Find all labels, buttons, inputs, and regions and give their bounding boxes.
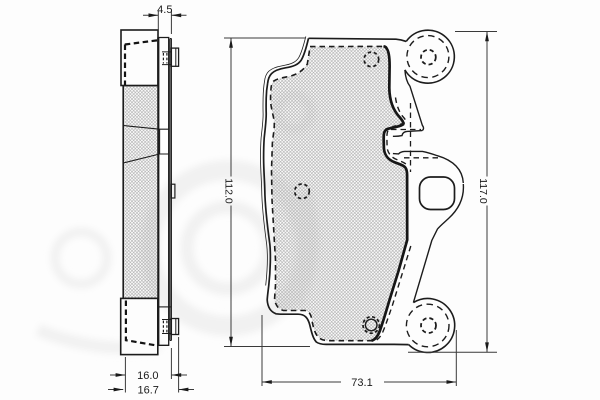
- svg-text:16.0: 16.0: [137, 370, 158, 382]
- svg-text:73.1: 73.1: [351, 377, 372, 389]
- svg-text:4.5: 4.5: [157, 4, 172, 16]
- svg-text:117.0: 117.0: [477, 178, 489, 204]
- svg-text:112.0: 112.0: [223, 178, 235, 204]
- svg-text:16.7: 16.7: [137, 384, 158, 396]
